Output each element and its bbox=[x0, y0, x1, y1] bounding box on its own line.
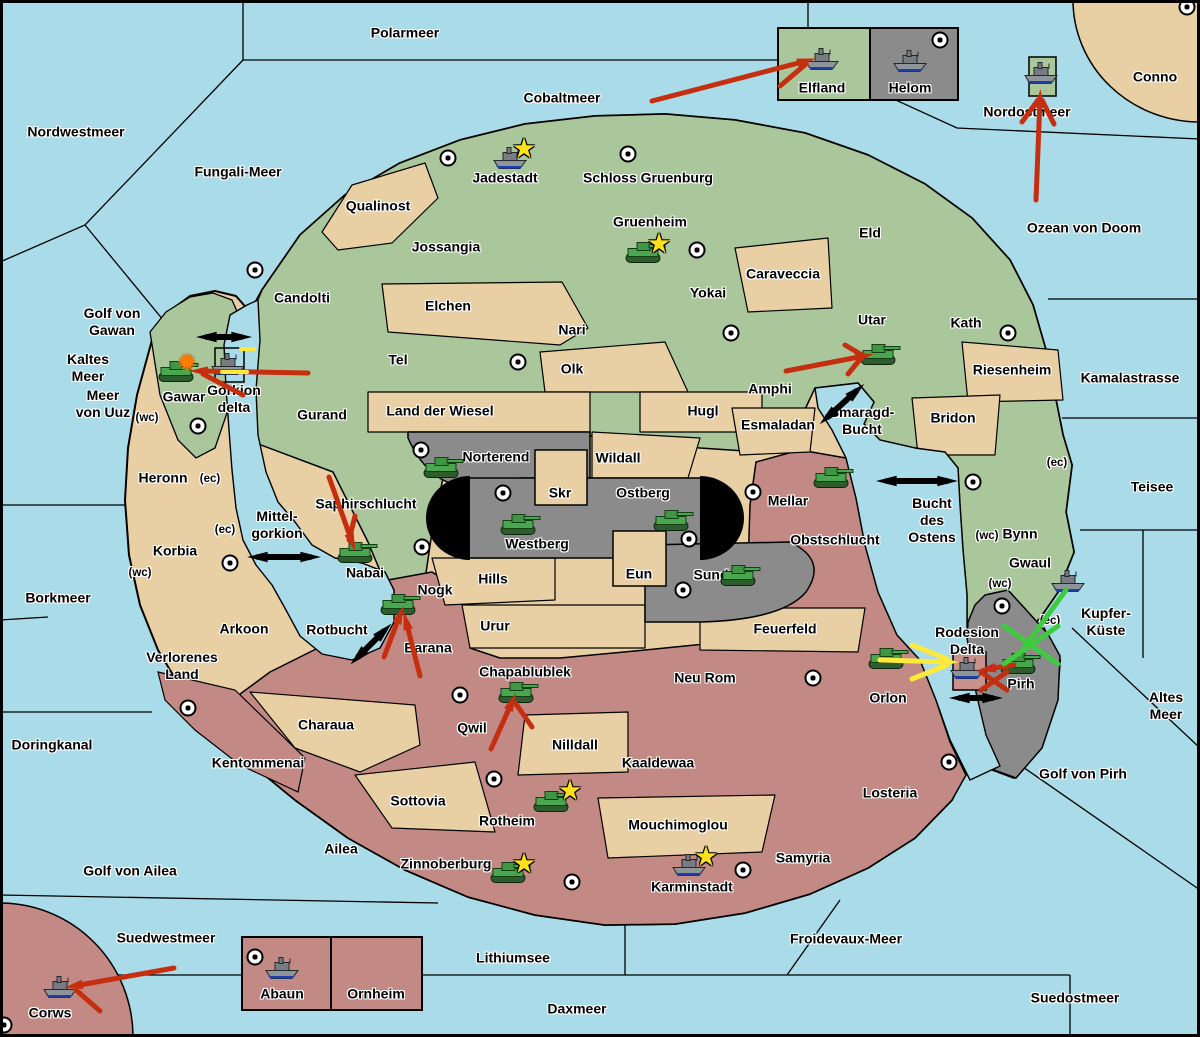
sea-label-rodesion-delta: Rodesion Delta bbox=[935, 624, 999, 658]
sea-label-ozean-von-doom: Ozean von Doom bbox=[1027, 220, 1141, 237]
territory-label-neu-rom[interactable]: Neu Rom bbox=[674, 670, 735, 687]
ship-icon-abaun[interactable] bbox=[262, 956, 302, 987]
territory-label-chapablublek[interactable]: Chapablublek bbox=[479, 664, 571, 681]
territory-label-eun[interactable]: Eun bbox=[626, 566, 652, 583]
city-marker bbox=[222, 555, 239, 572]
coast-tag: (wc) bbox=[129, 567, 152, 581]
sea-label-daxmeer: Daxmeer bbox=[547, 1001, 606, 1018]
city-marker bbox=[723, 325, 740, 342]
territory-label-mellar[interactable]: Mellar bbox=[768, 493, 808, 510]
territory-label-nilldall[interactable]: Nilldall bbox=[552, 737, 598, 754]
city-marker bbox=[932, 32, 949, 49]
territory-label-olk[interactable]: Olk bbox=[561, 361, 584, 378]
city-marker bbox=[247, 262, 264, 279]
tank-icon-pirh[interactable] bbox=[999, 652, 1041, 681]
city-marker bbox=[620, 146, 637, 163]
city-marker bbox=[190, 418, 207, 435]
sea-label-suedwestmeer: Suedwestmeer bbox=[117, 930, 216, 947]
map-overlay: PolarmeerCobaltmeerNordwestmeerFungali-M… bbox=[0, 0, 1200, 1037]
sea-label-fungali-meer: Fungali-Meer bbox=[194, 164, 281, 181]
territory-label-sottovia[interactable]: Sottovia bbox=[390, 793, 445, 810]
tank-icon-orlon[interactable] bbox=[867, 647, 909, 676]
sea-label-rotbucht: Rotbucht bbox=[306, 622, 367, 639]
sea-label-bucht-des-ostens: Bucht des Ostens bbox=[908, 495, 955, 545]
territory-label-jossangia[interactable]: Jossangia bbox=[412, 239, 480, 256]
city-marker bbox=[414, 539, 431, 556]
territory-label-helom[interactable]: Helom bbox=[889, 80, 932, 97]
sea-label-kupfer-k-ste: Kupfer- Küste bbox=[1081, 605, 1131, 639]
ship-icon-helom[interactable] bbox=[890, 49, 930, 80]
territory-label-elfland[interactable]: Elfland bbox=[799, 80, 846, 97]
territory-label-yokai[interactable]: Yokai bbox=[690, 285, 726, 302]
coast-tag: (wc) bbox=[976, 530, 999, 544]
game-map: PolarmeerCobaltmeerNordwestmeerFungali-M… bbox=[0, 0, 1200, 1037]
territory-label-obstschlucht[interactable]: Obstschlucht bbox=[790, 532, 879, 549]
territory-label-eld[interactable]: Eld bbox=[859, 225, 881, 242]
sea-label-golf-von-pirh: Golf von Pirh bbox=[1039, 766, 1127, 783]
sea-label-mittel-gorkion: Mittel- gorkion bbox=[251, 508, 302, 542]
territory-label-candolti[interactable]: Candolti bbox=[274, 290, 330, 307]
city-marker bbox=[440, 150, 457, 167]
capital-star-icon: ★ bbox=[513, 135, 535, 164]
city-marker bbox=[1179, 0, 1196, 16]
territory-label-gruenheim[interactable]: Gruenheim bbox=[613, 214, 687, 231]
coast-tag: (ec) bbox=[200, 473, 220, 487]
territory-label-kath[interactable]: Kath bbox=[950, 315, 981, 332]
territory-label-qwil[interactable]: Qwil bbox=[457, 720, 487, 737]
territory-label-riesenheim[interactable]: Riesenheim bbox=[973, 362, 1052, 379]
territory-label-schloss-gruenburg[interactable]: Schloss Gruenburg bbox=[583, 170, 713, 187]
tank-icon-mellar[interactable] bbox=[812, 466, 854, 495]
territory-label-heronn[interactable]: Heronn bbox=[139, 470, 188, 487]
city-marker bbox=[1000, 325, 1017, 342]
coast-tag: (wc) bbox=[989, 578, 1012, 592]
territory-label-nogk[interactable]: Nogk bbox=[418, 582, 453, 599]
territory-label-hills[interactable]: Hills bbox=[478, 571, 508, 588]
sea-label-altes-meer: Altes Meer bbox=[1149, 689, 1183, 723]
territory-label-korbia[interactable]: Korbia bbox=[153, 543, 197, 560]
territory-label-gwaul[interactable]: Gwaul bbox=[1009, 555, 1051, 572]
city-marker bbox=[689, 242, 706, 259]
coast-tag: (ec) bbox=[1040, 615, 1060, 629]
territory-label-urur[interactable]: Urur bbox=[480, 618, 510, 635]
territory-label-ornheim[interactable]: Ornheim bbox=[347, 986, 405, 1003]
territory-label-barana[interactable]: Barana bbox=[404, 640, 451, 657]
territory-label-hugl[interactable]: Hugl bbox=[687, 403, 718, 420]
territory-label-wildall[interactable]: Wildall bbox=[596, 450, 641, 467]
territory-label-skr[interactable]: Skr bbox=[549, 485, 572, 502]
territory-label-qualinost[interactable]: Qualinost bbox=[346, 198, 411, 215]
sea-label-doringkanal: Doringkanal bbox=[12, 737, 93, 754]
sea-label-smaragd-bucht: Smaragd- Bucht bbox=[830, 404, 895, 438]
territory-label-conno[interactable]: Conno bbox=[1133, 69, 1177, 86]
territory-label-caraveccia[interactable]: Caraveccia bbox=[746, 266, 820, 283]
ship-icon-elfland[interactable] bbox=[802, 47, 842, 78]
ship-icon-corws[interactable] bbox=[40, 975, 80, 1006]
capital-star-icon: ★ bbox=[648, 230, 670, 259]
territory-label-ailea[interactable]: Ailea bbox=[324, 841, 357, 858]
tank-icon-nabai[interactable] bbox=[336, 541, 378, 570]
ship-icon-nordostmeer[interactable] bbox=[1021, 61, 1061, 92]
tank-icon-nogk[interactable] bbox=[379, 593, 421, 622]
territory-label-bridon[interactable]: Bridon bbox=[930, 410, 975, 427]
territory-label-kaaldewaa[interactable]: Kaaldewaa bbox=[622, 755, 694, 772]
city-marker bbox=[994, 598, 1011, 615]
city-marker bbox=[510, 354, 527, 371]
territory-label-corws[interactable]: Corws bbox=[29, 1005, 72, 1022]
sea-label-meer-von-uuz: Meer von Uuz bbox=[76, 387, 130, 421]
city-marker bbox=[247, 949, 264, 966]
city-marker bbox=[941, 754, 958, 771]
tank-icon-sund[interactable] bbox=[719, 564, 761, 593]
city-marker bbox=[0, 1017, 13, 1034]
territory-label-ostberg[interactable]: Ostberg bbox=[616, 485, 670, 502]
territory-label-elchen[interactable]: Elchen bbox=[425, 298, 471, 315]
territory-label-charaua[interactable]: Charaua bbox=[298, 717, 354, 734]
sea-label-golf-von-ailea: Golf von Ailea bbox=[83, 863, 177, 880]
sea-label-kamalastrasse: Kamalastrasse bbox=[1081, 370, 1180, 387]
city-marker bbox=[675, 582, 692, 599]
territory-label-land-der-wiesel[interactable]: Land der Wiesel bbox=[386, 403, 493, 420]
territory-label-kentommenai[interactable]: Kentommenai bbox=[212, 755, 305, 772]
sea-label-froidevaux-meer: Froidevaux-Meer bbox=[790, 931, 902, 948]
territory-label-rotheim[interactable]: Rotheim bbox=[479, 813, 535, 830]
territory-label-saphirschlucht[interactable]: Saphirschlucht bbox=[315, 496, 416, 513]
tank-icon-westberg[interactable] bbox=[499, 513, 541, 542]
tank-icon-chapablublek[interactable] bbox=[497, 681, 539, 710]
city-marker bbox=[805, 670, 822, 687]
sea-label-kaltes-meer: Kaltes Meer bbox=[67, 351, 109, 385]
territory-label-abaun[interactable]: Abaun bbox=[260, 986, 304, 1003]
coast-tag: (wc) bbox=[136, 412, 159, 426]
city-marker bbox=[486, 771, 503, 788]
territory-label-mouchimoglou[interactable]: Mouchimoglou bbox=[628, 817, 728, 834]
sea-label-teisee: Teisee bbox=[1131, 479, 1174, 496]
tank-icon-ostberg[interactable] bbox=[652, 509, 694, 538]
sea-label-nordwestmeer: Nordwestmeer bbox=[27, 124, 124, 141]
territory-label-losteria[interactable]: Losteria bbox=[863, 785, 917, 802]
sea-label-suedostmeer: Suedostmeer bbox=[1031, 990, 1120, 1007]
territory-label-gawar[interactable]: Gawar bbox=[163, 389, 206, 406]
city-marker bbox=[735, 862, 752, 879]
sea-label-cobaltmeer: Cobaltmeer bbox=[523, 90, 600, 107]
capital-star-icon: ★ bbox=[559, 777, 581, 806]
territory-label-zinnoberburg[interactable]: Zinnoberburg bbox=[401, 856, 492, 873]
city-marker bbox=[180, 700, 197, 717]
territory-label-gurand[interactable]: Gurand bbox=[297, 407, 347, 424]
ship-icon-gorkion-delta[interactable] bbox=[208, 352, 248, 383]
explosion-icon: ✹ bbox=[178, 351, 196, 376]
city-marker bbox=[495, 485, 512, 502]
capital-star-icon: ★ bbox=[695, 843, 717, 872]
coast-tag: (ec) bbox=[1047, 457, 1067, 471]
capital-star-icon: ★ bbox=[513, 850, 535, 879]
territory-label-amphi[interactable]: Amphi bbox=[748, 381, 792, 398]
sea-label-polarmeer: Polarmeer bbox=[371, 25, 439, 42]
territory-label-esmaladan[interactable]: Esmaladan bbox=[741, 417, 815, 434]
coast-tag: (ec) bbox=[215, 524, 235, 538]
sea-label-borkmeer: Borkmeer bbox=[25, 590, 90, 607]
ship-icon-rodesion-delta[interactable] bbox=[947, 656, 987, 687]
city-marker bbox=[452, 687, 469, 704]
territory-label-tel[interactable]: Tel bbox=[388, 352, 407, 369]
tank-icon-utar[interactable] bbox=[859, 343, 901, 372]
territory-label-verlorenes-land[interactable]: Verlorenes Land bbox=[146, 649, 218, 683]
territory-label-arkoon[interactable]: Arkoon bbox=[220, 621, 269, 638]
territory-label-orlon[interactable]: Orlon bbox=[869, 690, 906, 707]
sea-label-nordostmeer: Nordostmeer bbox=[983, 104, 1070, 121]
ship-icon-gwaul[interactable] bbox=[1048, 569, 1088, 600]
city-marker bbox=[965, 474, 982, 491]
sea-label-golf-von-gawan: Golf von Gawan bbox=[84, 305, 141, 339]
territory-label-feuerfeld[interactable]: Feuerfeld bbox=[753, 621, 816, 638]
territory-label-samyria[interactable]: Samyria bbox=[776, 850, 830, 867]
tank-icon-norterend[interactable] bbox=[422, 456, 464, 485]
territory-label-norterend[interactable]: Norterend bbox=[463, 449, 530, 466]
city-marker bbox=[745, 484, 762, 501]
territory-label-nari[interactable]: Nari bbox=[558, 322, 585, 339]
city-marker bbox=[564, 874, 581, 891]
sea-label-lithiumsee: Lithiumsee bbox=[476, 950, 550, 967]
territory-label-bynn[interactable]: Bynn bbox=[1003, 526, 1038, 543]
sea-label-gorkion-delta: Gorkion delta bbox=[207, 382, 261, 416]
territory-label-utar[interactable]: Utar bbox=[858, 312, 886, 329]
